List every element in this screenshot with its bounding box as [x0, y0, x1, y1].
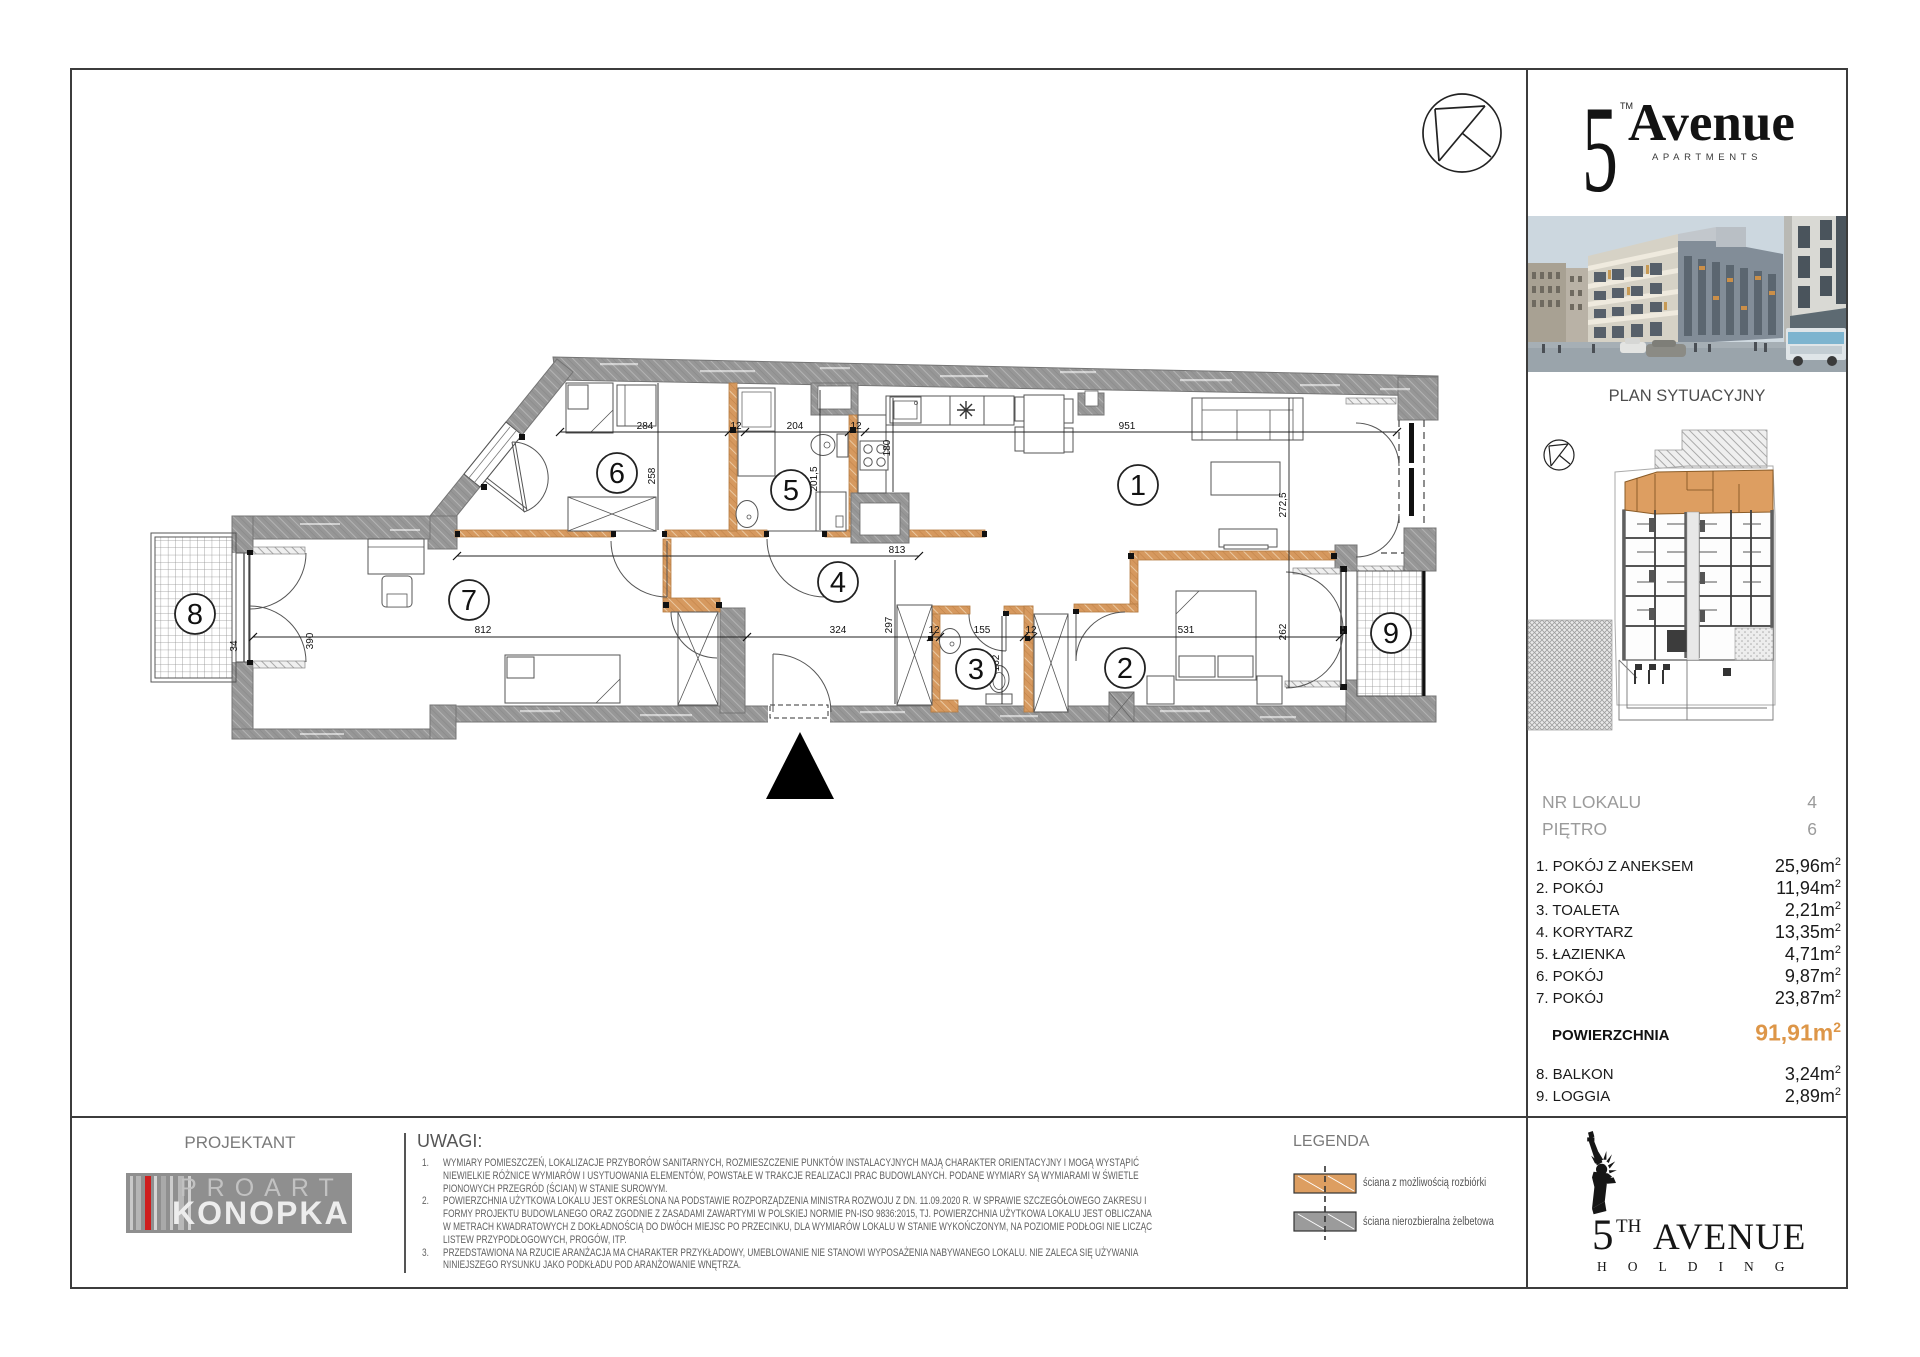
svg-text:3: 3: [968, 654, 984, 686]
svg-text:1: 1: [1130, 470, 1146, 502]
svg-text:9: 9: [1383, 618, 1399, 650]
svg-text:180: 180: [882, 439, 893, 456]
svg-text:2: 2: [1117, 653, 1133, 685]
svg-text:272,5: 272,5: [1278, 492, 1289, 517]
svg-text:531: 531: [1178, 625, 1195, 636]
svg-text:5: 5: [783, 475, 799, 507]
svg-text:12: 12: [1025, 625, 1037, 636]
svg-text:34: 34: [229, 640, 240, 652]
svg-text:12: 12: [928, 625, 940, 636]
svg-text:813: 813: [889, 545, 906, 556]
svg-text:6: 6: [609, 458, 625, 490]
svg-text:951: 951: [1119, 421, 1136, 432]
svg-text:258: 258: [647, 467, 658, 484]
svg-text:8: 8: [187, 599, 203, 631]
svg-text:324: 324: [830, 625, 847, 636]
svg-text:390: 390: [305, 632, 316, 649]
svg-text:7: 7: [461, 585, 477, 617]
svg-text:204: 204: [787, 421, 804, 432]
svg-text:4: 4: [830, 567, 846, 599]
svg-text:297: 297: [884, 616, 895, 633]
svg-text:262: 262: [1278, 623, 1289, 640]
svg-text:284: 284: [637, 421, 654, 432]
svg-text:155: 155: [974, 625, 991, 636]
svg-text:812: 812: [475, 625, 492, 636]
